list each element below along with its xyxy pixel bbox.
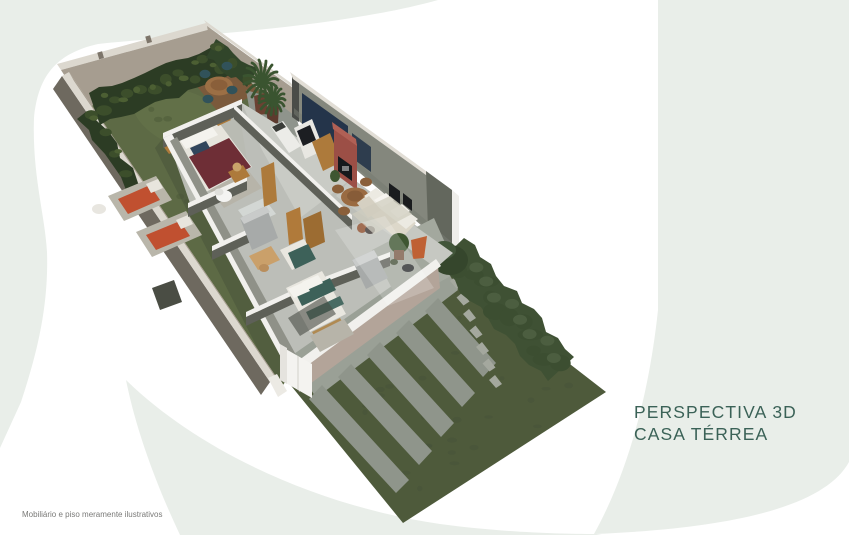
svg-text:Mobiliário e piso meramente il: Mobiliário e piso meramente ilustrativos <box>22 510 163 519</box>
svg-text:CASA TÉRREA: CASA TÉRREA <box>634 424 768 444</box>
svg-text:PERSPECTIVA 3D: PERSPECTIVA 3D <box>634 402 797 422</box>
